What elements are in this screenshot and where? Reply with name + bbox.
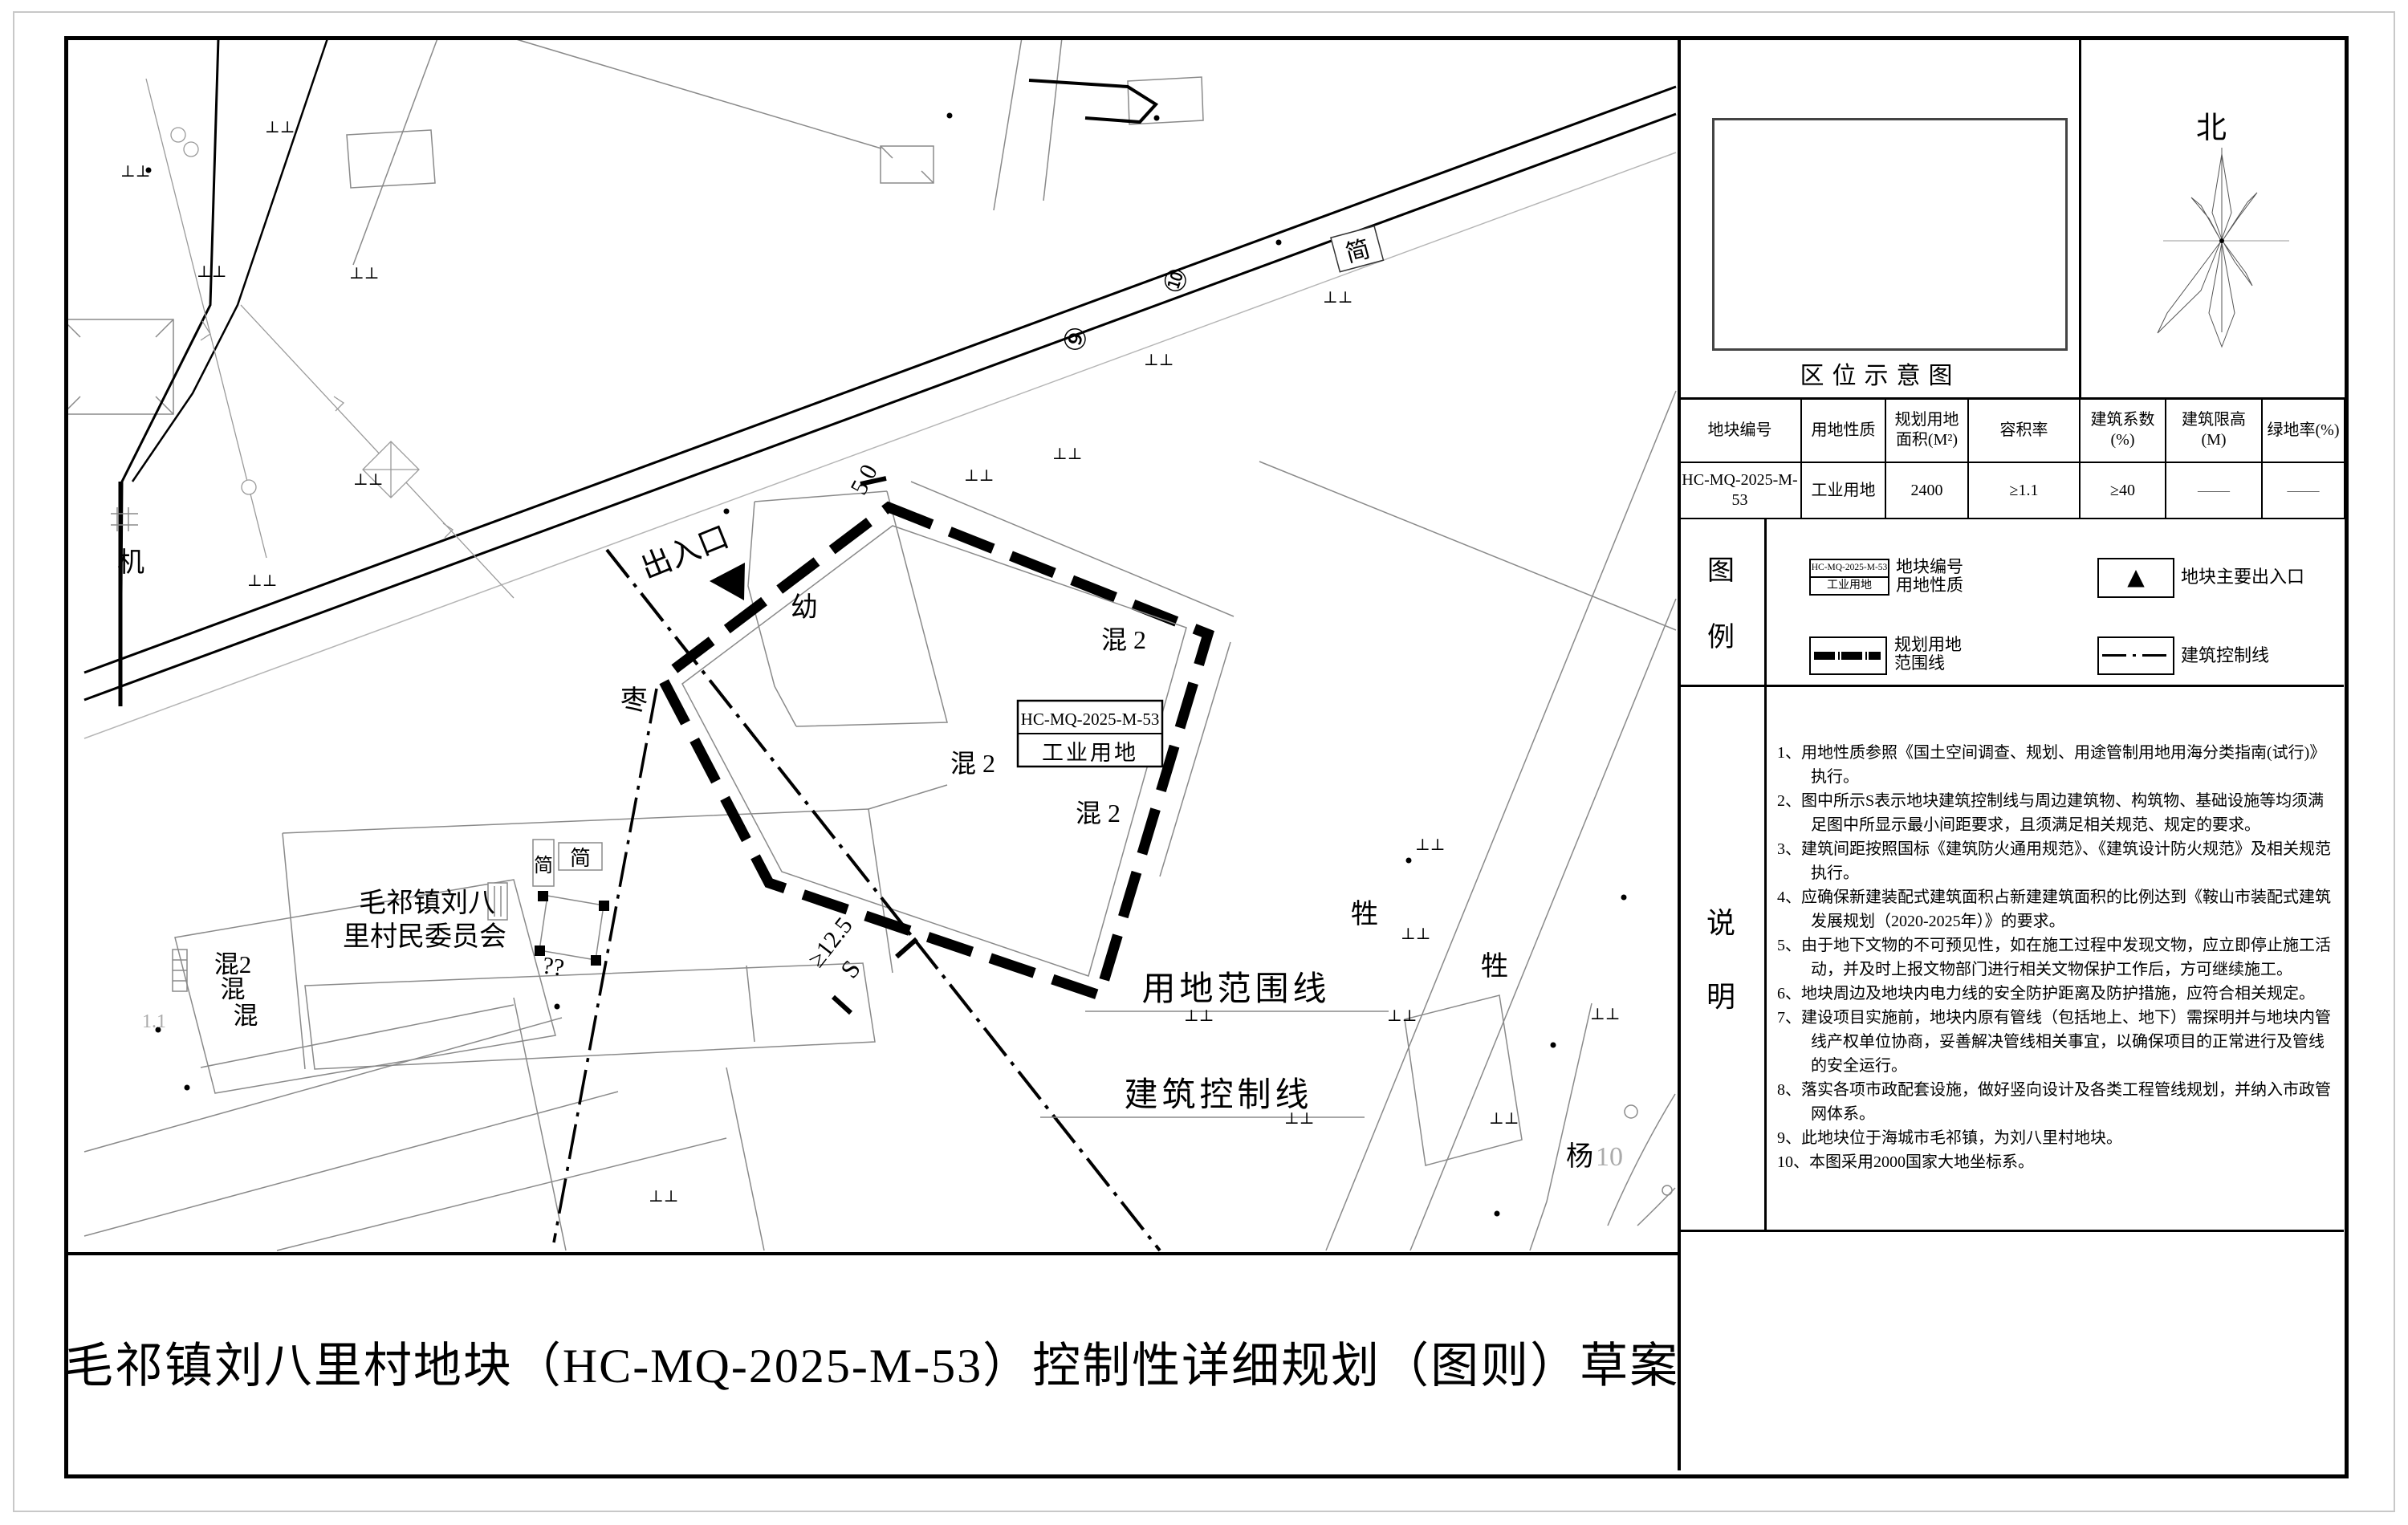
cell-coverage: ≥40 [2080, 462, 2166, 518]
note-item: 1、用地性质参照《国土空间调查、规划、用途管制用地用海分类指南(试行)》执行。 [1777, 741, 2339, 789]
plan-sheet: HC-MQ-2025-M-53 工业用地 ⊥⊥ ⊥⊥ ⊥⊥ ⊥⊥ ⊥⊥ ⊥⊥ ⊥… [0, 0, 2408, 1525]
cell-green: —— [2262, 462, 2345, 518]
legend-boundary-sample [1809, 636, 1887, 675]
col-header-coverage: 建筑系数(%) [2080, 398, 2166, 462]
boundary-line-icon [1814, 652, 1881, 660]
location-inset-rect [1712, 118, 2068, 351]
col-header-green: 绿地率(%) [2262, 398, 2345, 462]
col-header-land-use: 用地性质 [1801, 398, 1885, 462]
notes-title: 说 明 [1678, 685, 1764, 1230]
note-item: 5、由于地下文物的不可预见性，如在施工过程中发现文物，应立即停止施工活动，并及时… [1777, 933, 2339, 982]
entrance-triangle-icon: ▲ [2127, 563, 2145, 590]
legend-title: 图 例 [1678, 518, 1764, 685]
legend-control-sample [2097, 636, 2174, 675]
note-item: 6、地块周边及地块内电力线的安全防护距离及防护措施，应符合相关规定。 [1777, 982, 2339, 1006]
col-header-area: 规划用地面积(M²) [1885, 398, 1968, 462]
col-header-far: 容积率 [1968, 398, 2080, 462]
legend-plot-id-sample: HC-MQ-2025-M-53 工业用地 [1809, 559, 1889, 596]
plot-index-table: 地块编号 用地性质 规划用地面积(M²) 容积率 建筑系数(%) 建筑限高(M)… [1678, 397, 2345, 519]
legend-control-label: 建筑控制线 [2181, 646, 2269, 665]
cell-area: 2400 [1885, 462, 1968, 518]
legend-title-divider [1764, 518, 1767, 1230]
cell-far: ≥1.1 [1968, 462, 2080, 518]
note-item: 4、应确保新建装配式建筑面积占新建建筑面积的比例达到《鞍山市装配式建筑发展规划（… [1777, 885, 2339, 933]
notes-bottom-line [1678, 1230, 2344, 1232]
sheet-title: 毛祁镇刘八里村地块（HC-MQ-2025-M-53）控制性详细规划（图则）草案 [65, 1327, 1679, 1397]
legend-plot-id-bottom: 工业用地 [1811, 578, 1888, 594]
legend-plot-id-label: 地块编号 用地性质 [1896, 558, 1963, 595]
legend-plot-id-top: HC-MQ-2025-M-53 [1811, 560, 1888, 578]
note-item: 2、图中所示S表示地块建筑控制线与周边建筑物、构筑物、基础设施等均须满足图中所显… [1777, 789, 2339, 837]
location-caption: 区位示意图 [1682, 356, 2079, 391]
note-item: 3、建筑间距按照国标《建筑防火通用规范》、《建筑设计防火规范》及相关规范执行。 [1777, 837, 2339, 885]
note-item: 9、此地块位于海城市毛祁镇，为刘八里村地块。 [1777, 1126, 2339, 1150]
col-header-height: 建筑限高(M) [2166, 398, 2262, 462]
legend-boundary-label: 规划用地 范围线 [1894, 636, 1962, 673]
note-item: 7、建设项目实施前，地块内原有管线（包括地上、地下）需探明并与地块内管线产权单位… [1777, 1006, 2339, 1078]
cell-height: —— [2166, 462, 2262, 518]
legend-entrance-label: 地块主要出入口 [2181, 567, 2304, 586]
control-line-icon [2102, 654, 2170, 657]
note-item: 8、落实各项市政配套设施，做好竖向设计及各类工程管线规划，并纳入市政管网体系。 [1777, 1078, 2339, 1126]
compass-center [2219, 238, 2224, 243]
compass-rose [2079, 36, 2344, 397]
cell-land-use: 工业用地 [1801, 462, 1885, 518]
cell-plot-id: HC-MQ-2025-M-53 [1678, 462, 1801, 518]
col-header-plot-id: 地块编号 [1678, 398, 1801, 462]
title-block: 毛祁镇刘八里村地块（HC-MQ-2025-M-53）控制性详细规划（图则）草案 [64, 1252, 1680, 1470]
notes-list: 1、用地性质参照《国土空间调查、规划、用途管制用地用海分类指南(试行)》执行。 … [1777, 685, 2339, 1230]
legend-entrance-sample: ▲ [2097, 558, 2174, 598]
note-item: 10、本图采用2000国家大地坐标系。 [1777, 1150, 2339, 1174]
